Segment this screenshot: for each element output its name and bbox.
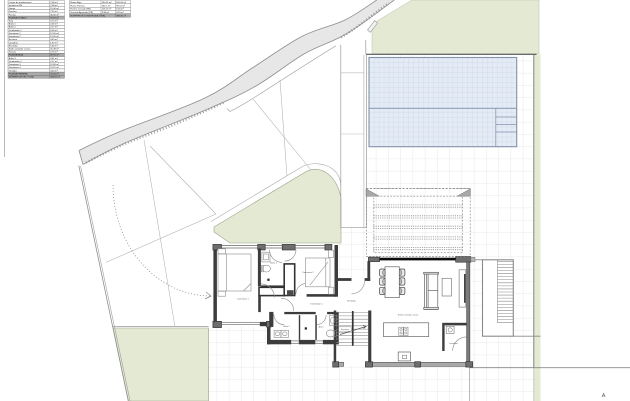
svg-text:7.48 m²: 7.48 m² (50, 4, 58, 7)
svg-text:104.1 m²: 104.1 m² (102, 4, 111, 7)
svg-text:Cuarto de instalaciones: Cuarto de instalaciones (9, 1, 33, 4)
svg-text:Terraza: Terraza (9, 51, 17, 54)
svg-text:Distribuidor 1: Distribuidor 1 (9, 29, 23, 32)
svg-text:1.87 m²: 1.87 m² (50, 41, 58, 44)
svg-text:Dormitorio 2: Dormitorio 2 (9, 35, 22, 38)
svg-text:PLANTA BAJA: PLANTA BAJA (9, 54, 24, 57)
svg-text:Lavadero: Lavadero (449, 342, 459, 345)
svg-text:SUPERFICIE CONSTRUIDA TOTAL: SUPERFICIE CONSTRUIDA TOTAL (70, 14, 106, 17)
svg-text:Baño 1: Baño 1 (270, 262, 277, 265)
svg-text:Distribuidor 1: Distribuidor 1 (310, 303, 323, 306)
svg-text:37.00 m²: 37.00 m² (50, 72, 59, 75)
svg-text:97.91 m²: 97.91 m² (50, 54, 59, 57)
svg-text:113.11 m²: 113.11 m² (102, 8, 112, 11)
svg-text:21.40 m²: 21.40 m² (50, 7, 59, 10)
svg-text:160.04 m²: 160.04 m² (116, 1, 126, 4)
svg-text:Distribuidor 2: Distribuidor 2 (9, 60, 23, 63)
svg-text:Porche Cerrado (PB): Porche Cerrado (PB) (70, 8, 91, 11)
svg-text:12.80 m²: 12.80 m² (50, 63, 59, 66)
svg-text:2.17 m²: 2.17 m² (50, 26, 58, 29)
svg-text:Baño 1: Baño 1 (9, 23, 17, 26)
svg-text:4.06 m²: 4.06 m² (50, 23, 58, 26)
svg-text:Lavadero: Lavadero (9, 41, 19, 44)
svg-text:150.14 m²: 150.14 m² (102, 1, 112, 4)
svg-text:Escalera: Escalera (341, 328, 350, 331)
svg-text:369.55 m²: 369.55 m² (116, 14, 126, 17)
svg-text:SUPERFICIE DEL TOTAL: SUPERFICIE DEL TOTAL (9, 76, 35, 79)
svg-text:7.08 m²: 7.08 m² (50, 1, 58, 4)
svg-text:Recibidor: Recibidor (9, 44, 19, 47)
svg-text:Dormitorio 4: Dormitorio 4 (9, 66, 22, 69)
svg-text:2.17 m²: 2.17 m² (50, 60, 58, 63)
svg-text:99.41 m²: 99.41 m² (116, 4, 125, 7)
svg-text:PLANTA PRIMERA: PLANTA PRIMERA (9, 72, 28, 75)
svg-text:Vivienda Apartado (PB): Vivienda Apartado (PB) (70, 11, 93, 14)
svg-text:Garaje: Garaje (9, 7, 16, 10)
svg-text:2.76 m²: 2.76 m² (50, 51, 58, 54)
svg-text:Salón comedor cocina: Salón comedor cocina (9, 47, 31, 50)
svg-text:4.31 m²: 4.31 m² (50, 57, 58, 60)
svg-text:Recibidor: Recibidor (347, 299, 356, 302)
svg-text:12.60 m²: 12.60 m² (50, 32, 59, 35)
svg-text:Dormitorio 1: Dormitorio 1 (9, 32, 22, 35)
svg-text:Dormitorio 1: Dormitorio 1 (237, 298, 249, 301)
svg-text:Salón comedor cocina: Salón comedor cocina (398, 313, 419, 316)
svg-text:4.40 m²: 4.40 m² (50, 38, 58, 41)
svg-text:Baño 2: Baño 2 (9, 26, 17, 29)
svg-text:Dormitorio 2: Dormitorio 2 (302, 271, 314, 274)
svg-text:75.00 m²: 75.00 m² (50, 16, 59, 19)
svg-text:209.91 m²: 209.91 m² (50, 76, 60, 79)
svg-text:13.30 m²: 13.30 m² (50, 35, 59, 38)
svg-text:5.18 m²: 5.18 m² (116, 8, 124, 11)
svg-text:8.38 m²: 8.38 m² (102, 11, 110, 14)
svg-text:Escalera: Escalera (9, 38, 18, 41)
svg-text:Baño 2: Baño 2 (283, 325, 290, 328)
svg-text:Planta Primera: Planta Primera (70, 4, 85, 7)
svg-text:Dormitorio 3: Dormitorio 3 (9, 63, 22, 66)
svg-text:13.10 m²: 13.10 m² (50, 66, 59, 69)
svg-text:Baño 3: Baño 3 (9, 57, 17, 60)
svg-text:40.00 m²: 40.00 m² (50, 13, 59, 16)
svg-text:Planta Baja: Planta Baja (70, 1, 82, 4)
svg-text:Porches: Porches (9, 10, 18, 13)
svg-text:5.48 m²: 5.48 m² (50, 44, 58, 47)
svg-text:41.48 m²: 41.48 m² (50, 47, 59, 50)
svg-text:4.60 m²: 4.60 m² (50, 69, 58, 72)
svg-text:3.70 m²: 3.70 m² (50, 19, 58, 22)
svg-text:7.35 m²: 7.35 m² (50, 10, 58, 13)
svg-text:Aseo: Aseo (319, 325, 325, 328)
svg-text:4.19 m²: 4.19 m² (116, 11, 124, 14)
svg-text:PLANTA SÓTANO: PLANTA SÓTANO (9, 16, 27, 19)
svg-text:6.09 m²: 6.09 m² (50, 29, 58, 32)
svg-text:Vestidor: Vestidor (9, 69, 17, 72)
